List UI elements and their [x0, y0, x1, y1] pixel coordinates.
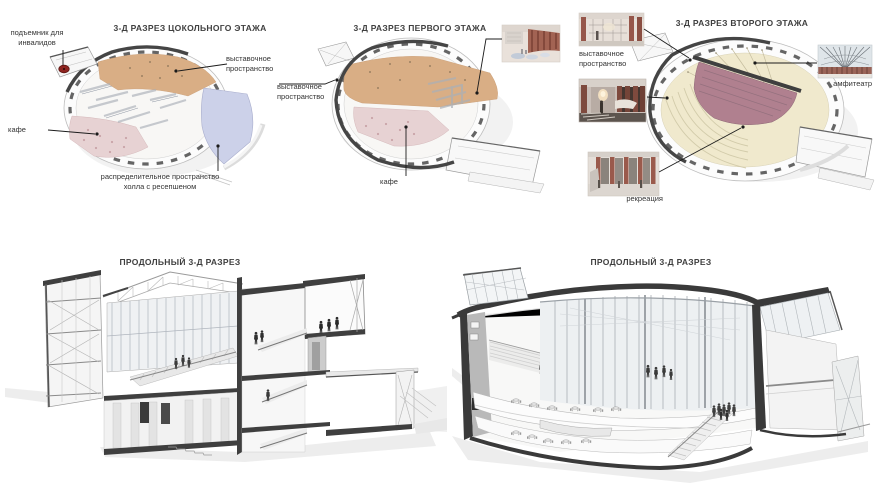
longitudinal-section-right: [452, 268, 870, 483]
label-first-floor-exhibition: выставочное пространство: [277, 82, 329, 101]
photo-exhibition-interior: [579, 13, 644, 46]
basement-panel-title: 3-Д РАЗРЕЗ ЦОКОЛЬНОГО ЭТАЖА: [90, 23, 290, 33]
second-floor-panel-title: 3-Д РАЗРЕЗ ВТОРОГО ЭТАЖА: [652, 18, 832, 28]
first-floor-panel-title: 3-Д РАЗРЕЗ ПЕРВОГО ЭТАЖА: [330, 23, 510, 33]
section-right-title: ПРОДОЛЬНЫЙ 3-Д РАЗРЕЗ: [576, 257, 726, 267]
longitudinal-section-left: [5, 270, 447, 462]
photo-amphitheater-dome: [818, 45, 872, 78]
photo-first-floor-interior: [502, 25, 560, 62]
photo-recreation-space: [588, 152, 659, 196]
label-basement-cafe: кафе: [8, 125, 48, 135]
label-disabled-lift: подъемник для инвалидов: [4, 28, 70, 47]
architectural-drawings: [0, 0, 880, 486]
label-recreation: рекреация: [615, 194, 663, 204]
presentation-board: 3-Д РАЗРЕЗ ЦОКОЛЬНОГО ЭТАЖА 3-Д РАЗРЕЗ П…: [0, 0, 880, 486]
label-distribution-hall: распределительное пространство холла с р…: [96, 172, 224, 191]
label-second-floor-exhibition: выставочное пространство: [579, 49, 631, 68]
photo-dark-gallery-interior: [579, 79, 646, 122]
section-left-title: ПРОДОЛЬНЫЙ 3-Д РАЗРЕЗ: [105, 257, 255, 267]
label-first-floor-cafe: кафе: [380, 177, 432, 187]
label-amphitheater: амфитеатр: [818, 79, 872, 89]
label-basement-exhibition: выставочное пространство: [226, 54, 278, 73]
